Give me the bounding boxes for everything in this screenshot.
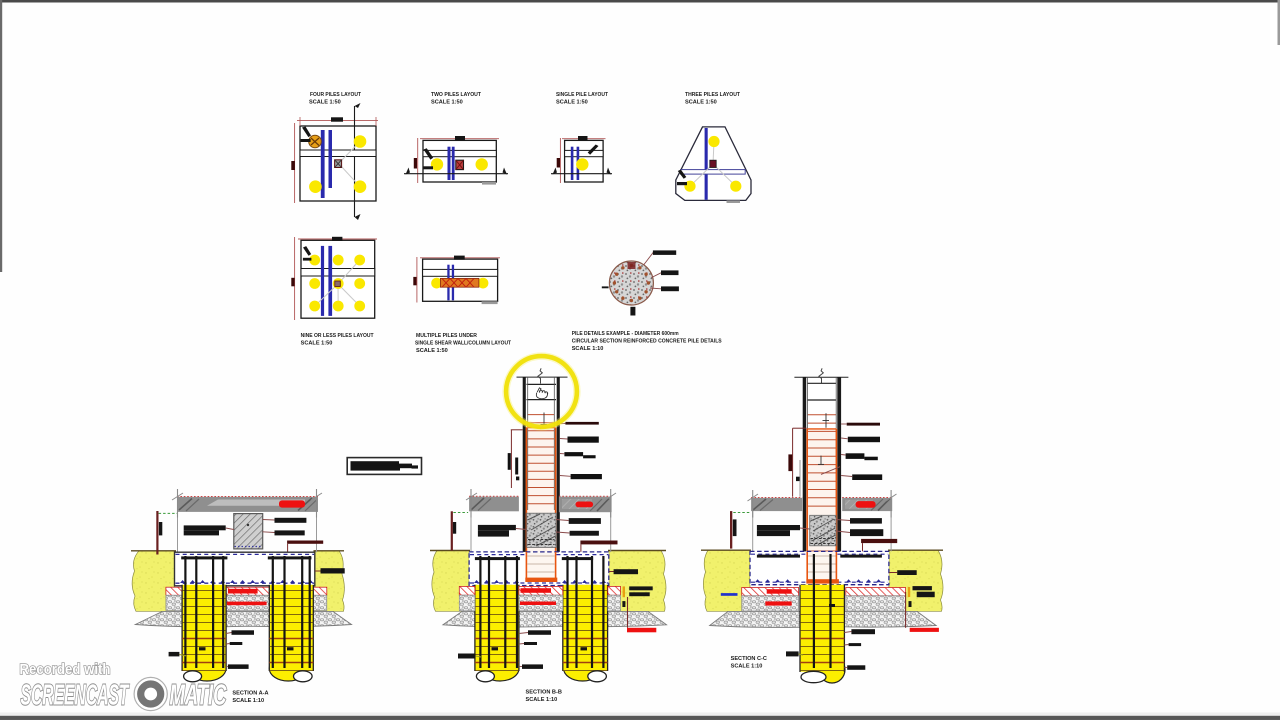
svg-text:SECTION A-A: SECTION A-A xyxy=(232,691,268,697)
svg-text:SINGLE SHEAR WALL/COLUMN LAYOU: SINGLE SHEAR WALL/COLUMN LAYOUT xyxy=(415,341,512,347)
svg-text:THREE PILES LAYOUT: THREE PILES LAYOUT xyxy=(685,92,741,98)
svg-text:MULTIPLE PILES UNDER: MULTIPLE PILES UNDER xyxy=(416,333,477,339)
svg-text:TWO PILES LAYOUT: TWO PILES LAYOUT xyxy=(431,92,482,98)
svg-text:SINGLE PILE LAYOUT: SINGLE PILE LAYOUT xyxy=(556,92,609,98)
svg-text:SCALE 1:10: SCALE 1:10 xyxy=(731,664,763,670)
svg-text:SCALE 1:50: SCALE 1:50 xyxy=(556,100,588,106)
svg-text:MATIC: MATIC xyxy=(170,680,228,712)
svg-text:SCALE 1:50: SCALE 1:50 xyxy=(309,100,341,106)
svg-text:SCALE 1:50: SCALE 1:50 xyxy=(416,348,448,354)
svg-text:FOUR PILES LAYOUT: FOUR PILES LAYOUT xyxy=(310,92,362,98)
svg-text:CIRCULAR SECTION REINFORCED CO: CIRCULAR SECTION REINFORCED CONCRETE PIL… xyxy=(572,339,722,345)
svg-text:SCALE 1:50: SCALE 1:50 xyxy=(301,341,333,347)
svg-text:PILE DETAILS EXAMPLE - DIAMET: PILE DETAILS EXAMPLE - DIAMETER 600mm xyxy=(572,331,679,337)
svg-text:SECTION B-B: SECTION B-B xyxy=(526,690,562,696)
svg-text:SCALE 1:50: SCALE 1:50 xyxy=(685,100,717,106)
svg-text:SCREENCAST: SCREENCAST xyxy=(21,680,130,712)
svg-text:NINE OR LESS PILES LAYOUT: NINE OR LESS PILES LAYOUT xyxy=(301,333,375,339)
svg-text:SECTION C-C: SECTION C-C xyxy=(731,656,767,662)
svg-text:SCALE 1:10: SCALE 1:10 xyxy=(526,697,558,703)
svg-text:Recorded with: Recorded with xyxy=(20,662,111,678)
svg-text:SCALE 1:50: SCALE 1:50 xyxy=(431,100,463,106)
svg-text:SCALE 1:10: SCALE 1:10 xyxy=(232,698,264,704)
svg-text:SCALE 1:10: SCALE 1:10 xyxy=(572,346,604,352)
